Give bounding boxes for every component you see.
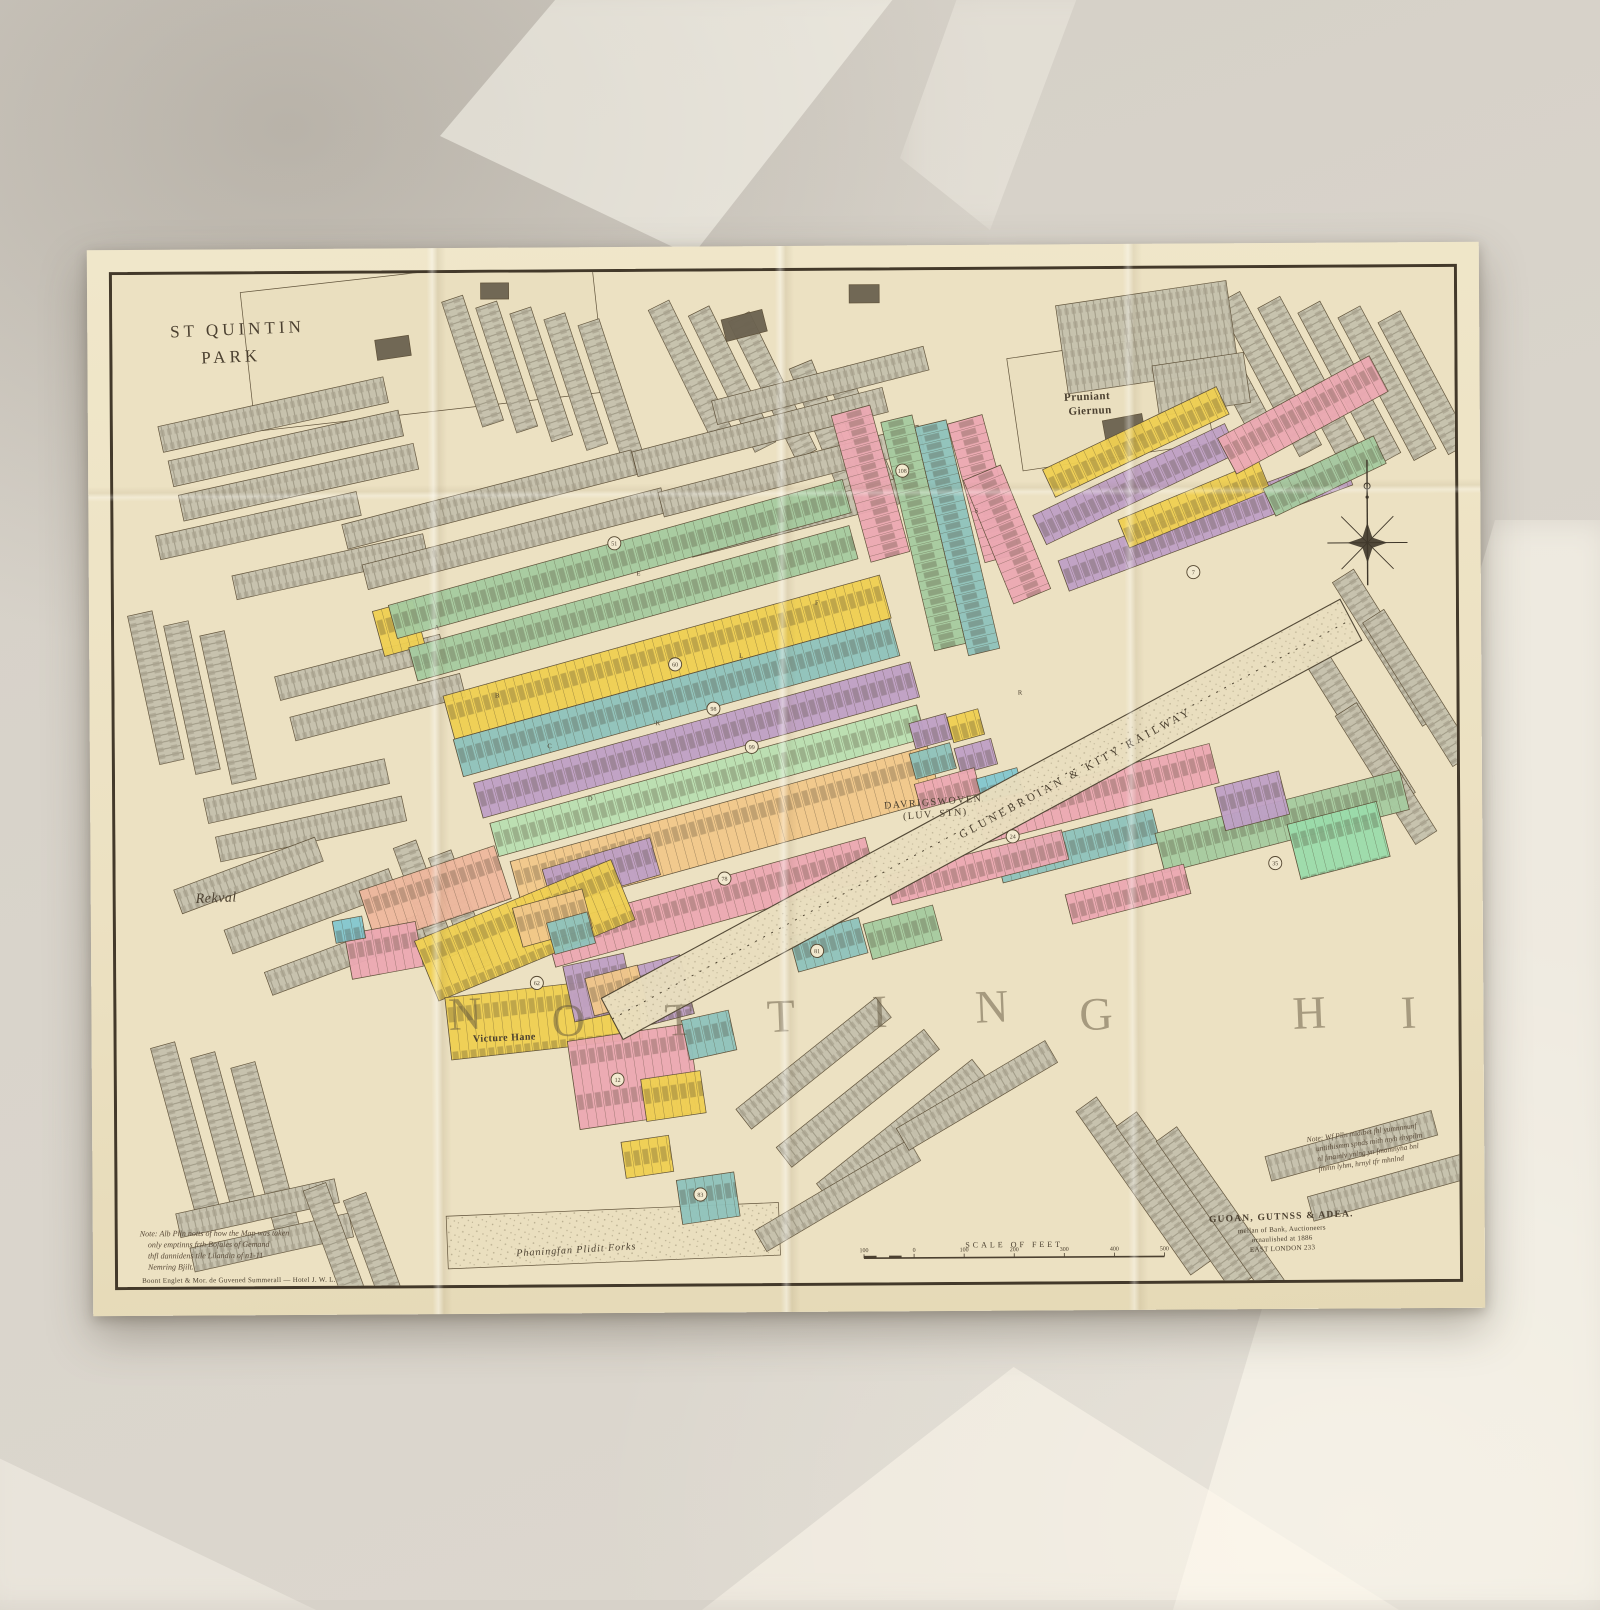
plot-number: 78: [722, 877, 728, 883]
district-ghost-letter: O: [551, 995, 586, 1048]
street-letter: D: [588, 795, 593, 802]
plot-number: 35: [1272, 861, 1278, 867]
plot-number: 108: [898, 469, 907, 475]
street-letter: K: [655, 720, 660, 727]
plot-number-badge: 81: [811, 944, 824, 957]
street-letter: S: [975, 508, 979, 515]
plot-number-badge: 98: [707, 702, 720, 715]
district-ghost-letter: N: [974, 981, 1009, 1034]
plot-number-badge: 7: [1187, 565, 1200, 578]
engraver-imprint: Boont Englet & Mor. de Guvened Summerall…: [142, 1276, 336, 1285]
street-map: GLUNEBROIAN & KITY RAILWAYNOTTINGHIST QU…: [112, 267, 1460, 1287]
plot-number: 62: [534, 981, 540, 987]
plot-number: 51: [611, 541, 617, 547]
plot-number-badge: 60: [669, 658, 682, 671]
plot-number: 83: [697, 1193, 703, 1199]
scalebar-segment: [889, 1256, 902, 1259]
landmark-building: [481, 283, 509, 299]
coloured-terrace-row: [621, 1135, 674, 1178]
scalebar-tick-label: 400: [1110, 1247, 1119, 1253]
street-letter: C: [547, 743, 551, 750]
district-ghost-letter: H: [1292, 987, 1327, 1040]
street-letter: F: [815, 600, 819, 607]
scalebar-tick-label: 100: [859, 1248, 868, 1254]
plot-number: 7: [1192, 570, 1195, 576]
pruniant-giernun-label-line: Giernun: [1068, 404, 1112, 418]
plot-number: 12: [615, 1078, 621, 1084]
plot-number-badge: 83: [694, 1188, 707, 1201]
note-bottom-left-line: Note: Alb Plln notts of how the Map was …: [139, 1228, 290, 1238]
sunlight-beam: [0, 1380, 400, 1610]
note-bottom-left-line: Nemring Bjilt.: [147, 1262, 194, 1271]
street-letter: E: [637, 570, 641, 577]
street-letter: A: [435, 624, 440, 631]
plot-number-badge: 78: [718, 872, 731, 885]
street-letter: B: [495, 693, 500, 700]
plot-number-badge: 108: [896, 464, 909, 477]
plot-number-badge: 12: [611, 1073, 624, 1086]
scalebar-tick-label: 100: [960, 1248, 969, 1254]
scalebar-tick-label: 500: [1160, 1246, 1169, 1252]
rekval-label-line: Rekval: [194, 889, 237, 907]
street-letter: L: [739, 653, 743, 660]
plot-number: 81: [814, 949, 820, 955]
scalebar-tick-label: 200: [1010, 1247, 1019, 1253]
plot-number-badge: 99: [745, 740, 758, 753]
coloured-terrace-row: [641, 1071, 707, 1122]
district-ghost-letter: T: [664, 994, 694, 1046]
map-sheet: GLUNEBROIAN & KITY RAILWAYNOTTINGHIST QU…: [87, 242, 1485, 1316]
plot-number-badge: 62: [530, 976, 543, 989]
sunlight-beam: [900, 0, 1200, 230]
plot-number-badge: 35: [1269, 856, 1282, 869]
sunlight-beam: [380, 0, 980, 280]
engraver-imprint-line: Boont Englet & Mor. de Guvened Summerall…: [142, 1276, 336, 1285]
scalebar-tick-label: 300: [1060, 1247, 1069, 1253]
coloured-terrace-row: [676, 1172, 740, 1225]
map-border-frame: GLUNEBROIAN & KITY RAILWAYNOTTINGHIST QU…: [109, 264, 1463, 1290]
note-bottom-left-line: only emptinns frth Bofales of Gemand: [148, 1240, 271, 1250]
pruniant-giernun-label-line: Pruniant: [1064, 390, 1111, 404]
district-ghost-letter: T: [766, 991, 796, 1043]
st-quintin-park-label-line: PARK: [201, 346, 262, 368]
scalebar-segment: [864, 1256, 877, 1259]
plot-number: 98: [710, 707, 716, 713]
scalebar-tick-label: 0: [913, 1248, 916, 1254]
rekval-label: Rekval: [194, 889, 237, 907]
plot-number: 99: [749, 745, 755, 751]
street-letter: R: [1018, 690, 1023, 697]
district-ghost-letter: I: [871, 987, 888, 1039]
plot-number: 60: [672, 663, 678, 669]
note-bottom-left-line: thfl dannidens tile Lilandin of n1-11: [148, 1251, 263, 1261]
plot-number-badge: 51: [608, 537, 621, 550]
landmark-building: [849, 285, 879, 303]
district-ghost-letter: G: [1078, 989, 1113, 1042]
plot-number: 24: [1010, 835, 1016, 841]
district-ghost-letter: I: [1400, 987, 1417, 1039]
plot-number-badge: 24: [1006, 830, 1019, 843]
